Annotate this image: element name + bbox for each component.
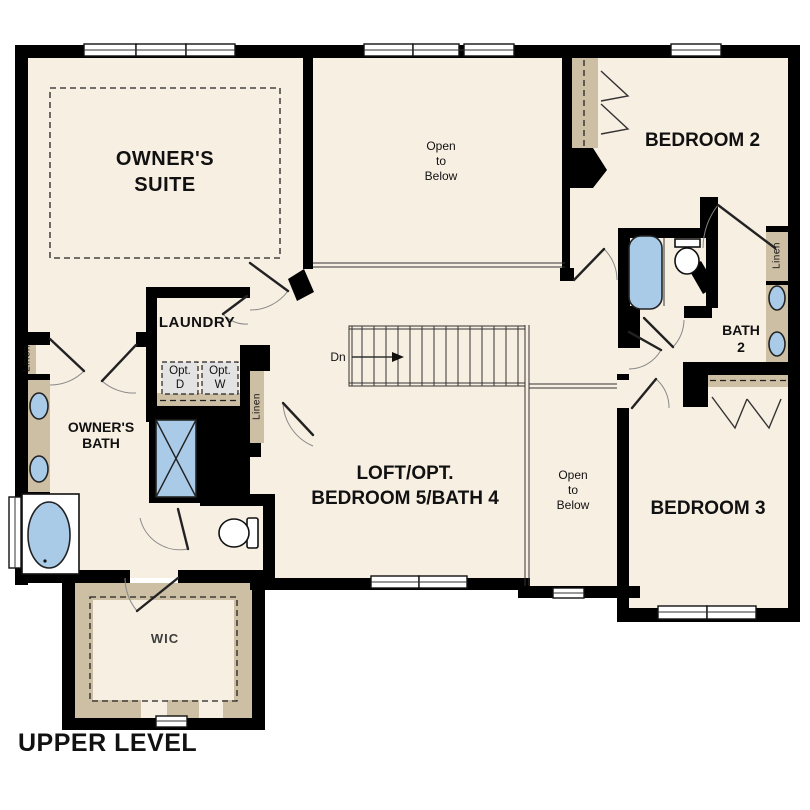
plan-title: UPPER LEVEL: [18, 729, 318, 758]
wic-shelf-outline: [90, 597, 237, 701]
railings: [313, 263, 617, 586]
owners-suite-label: OWNER'SSUITE: [85, 146, 245, 198]
tub-drain: [43, 559, 46, 562]
opt-washer-label: Opt.W: [202, 364, 238, 392]
staircase: [349, 326, 525, 386]
linework-overlay: [0, 0, 810, 810]
bath2-tub: [629, 236, 662, 309]
owners-tub: [28, 502, 70, 568]
bath2-sink-2: [769, 332, 785, 356]
wic-label: WIC: [130, 631, 200, 646]
linen-label-hall: Linen: [252, 387, 263, 427]
floor-plan: OWNER'SSUITE OpentoBelow BEDROOM 2 LAUND…: [0, 0, 810, 810]
down-arrow: [352, 352, 404, 362]
bath2-sink-1: [769, 286, 785, 310]
bedroom3-label: BEDROOM 3: [625, 498, 791, 520]
bedroom2-label: BEDROOM 2: [615, 130, 790, 152]
bedroom3-bifold: [712, 397, 781, 428]
open-to-below-mid-label: OpentoBelow: [545, 468, 601, 513]
opt-dryer-label: Opt.D: [162, 364, 198, 392]
laundry-label: LAUNDRY: [152, 314, 242, 331]
fixtures: [22, 236, 785, 574]
loft-label: LOFT/OPT.BEDROOM 5/BATH 4: [285, 461, 525, 511]
owners-sink-1: [30, 393, 48, 419]
down-label: Dn: [326, 350, 350, 364]
doors: [50, 205, 775, 611]
owners-bath-label: OWNER'SBATH: [56, 419, 146, 451]
linen-label-owners-bath: Linen: [22, 339, 33, 379]
bedroom2-bifold: [601, 71, 628, 134]
open-to-below-top-label: OpentoBelow: [410, 139, 472, 184]
bath2-toilet-bowl: [675, 248, 699, 274]
bath2-toilet-tank: [675, 239, 700, 247]
bath2-label: BATH2: [712, 322, 770, 356]
linen-label-bath2: Linen: [772, 236, 783, 276]
owners-sink-2: [30, 456, 48, 482]
owners-toilet-bowl: [219, 519, 249, 547]
